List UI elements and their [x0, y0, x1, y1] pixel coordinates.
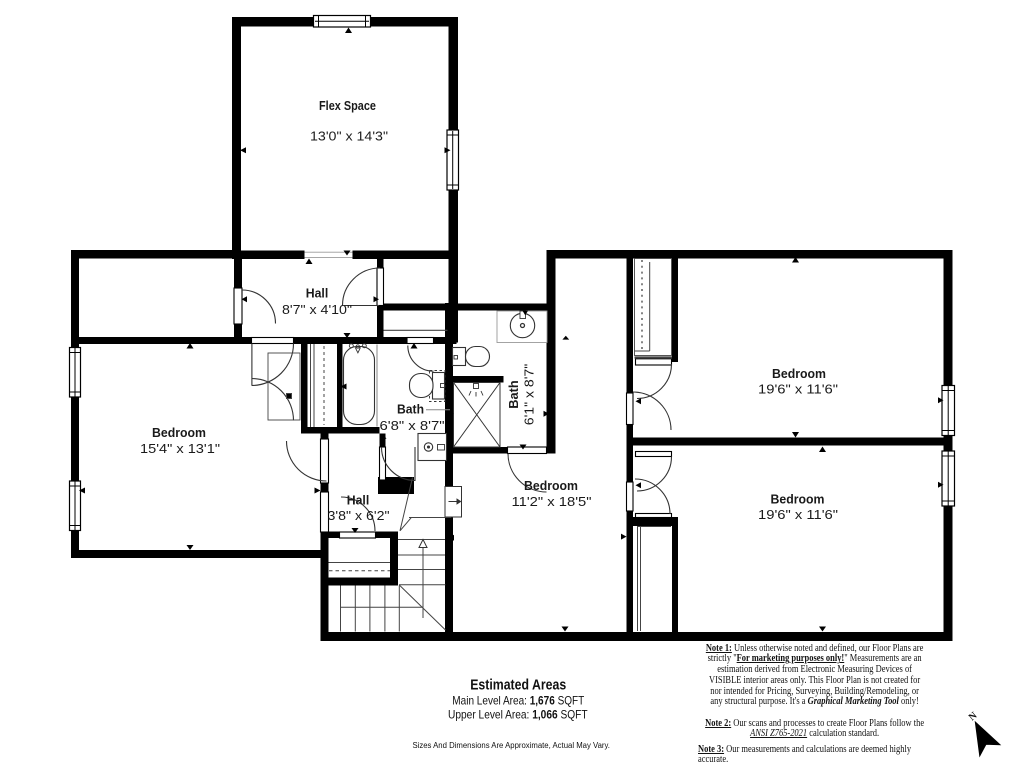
svg-text:Bath: Bath [397, 403, 424, 417]
svg-text:N: N [967, 710, 980, 724]
svg-text:Sizes And Dimensions Are Appro: Sizes And Dimensions Are Approximate, Ac… [412, 741, 610, 750]
svg-text:3'8" x 6'2": 3'8" x 6'2" [328, 509, 390, 523]
svg-text:Main Level Area: 1,676 SQFT: Main Level Area: 1,676 SQFT [452, 693, 585, 707]
svg-text:19'6" x 11'6": 19'6" x 11'6" [758, 383, 838, 397]
svg-text:6'8" x 8'7": 6'8" x 8'7" [380, 419, 445, 433]
svg-text:Hall: Hall [347, 494, 370, 508]
svg-text:Upper Level Area: 1,066 SQFT: Upper Level Area: 1,066 SQFT [448, 707, 588, 721]
svg-text:8'7" x 4'10": 8'7" x 4'10" [282, 303, 352, 317]
svg-text:11'2" x 18'5": 11'2" x 18'5" [512, 495, 592, 509]
svg-text:Flex Space: Flex Space [319, 99, 376, 113]
svg-text:6'1" x 8'7": 6'1" x 8'7" [523, 364, 537, 426]
svg-text:Bedroom: Bedroom [152, 426, 206, 440]
svg-text:Estimated Areas: Estimated Areas [470, 678, 566, 694]
svg-text:19'6" x 11'6": 19'6" x 11'6" [758, 508, 838, 522]
svg-text:15'4" x 13'1": 15'4" x 13'1" [140, 442, 220, 456]
svg-text:Bedroom: Bedroom [524, 479, 578, 493]
svg-text:13'0" x 14'3": 13'0" x 14'3" [310, 130, 388, 144]
svg-text:Bedroom: Bedroom [771, 493, 825, 507]
svg-text:Hall: Hall [306, 287, 329, 301]
svg-text:Bath: Bath [507, 380, 521, 409]
svg-text:Bedroom: Bedroom [772, 367, 826, 381]
